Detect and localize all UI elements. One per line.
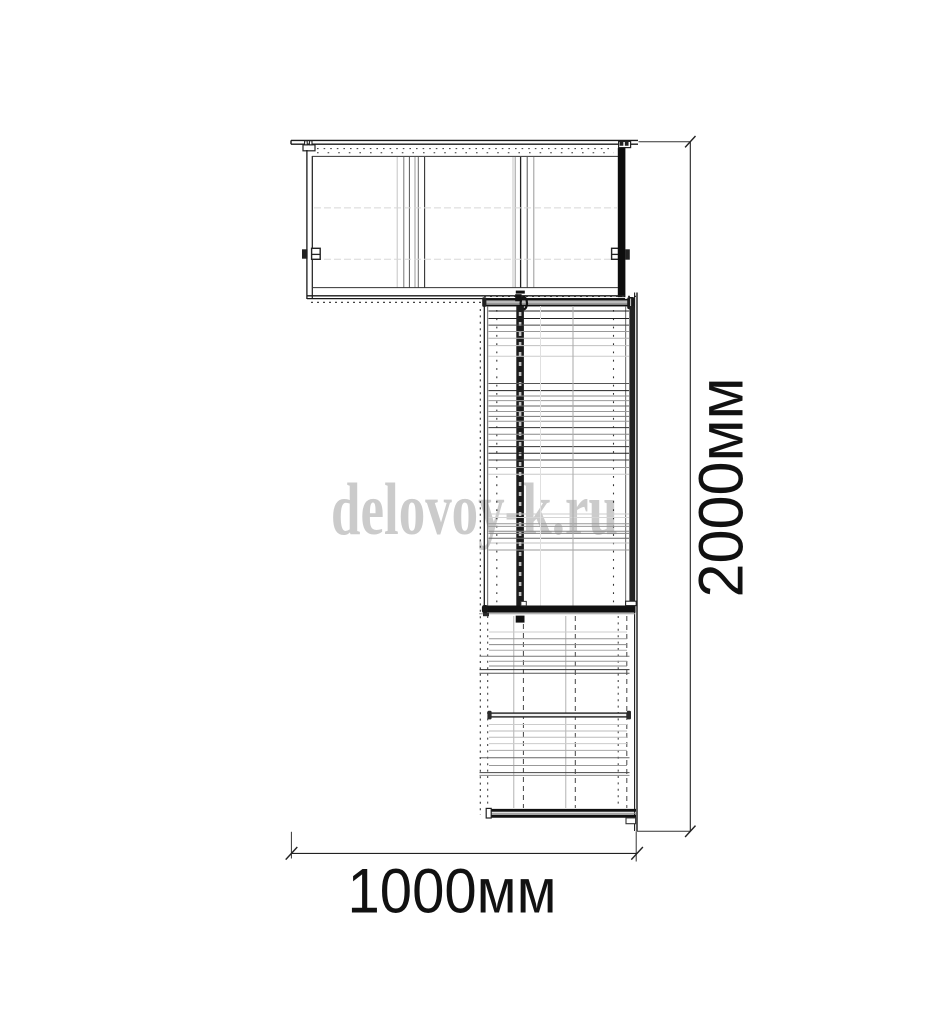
svg-text:1000мм: 1000мм [348,857,557,927]
svg-text:2000мм: 2000мм [687,378,757,598]
